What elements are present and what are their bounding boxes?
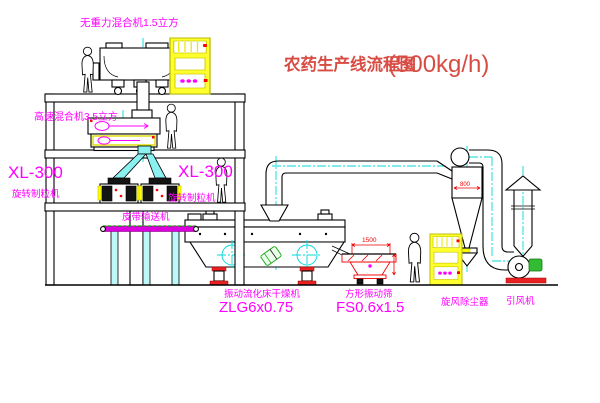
exhaust-duct — [261, 161, 452, 221]
process-flow-drawing: 无重力混合机1.5立方 农药生产线流程图 (500kg/h) 高速混合机3.5立… — [0, 0, 600, 403]
person-figure — [166, 104, 177, 148]
cyclone-label: 旋风除尘器 — [441, 296, 489, 308]
cyclone-dimension: 800 — [460, 182, 471, 188]
diagram-title-capacity: (500kg/h) — [388, 51, 489, 78]
fluid-bed-dryer — [185, 210, 345, 285]
induced-draft-fan — [506, 256, 546, 283]
granulator-left-name: 旋转制粒机 — [12, 188, 60, 200]
person-figure — [408, 233, 420, 282]
granulator-right-name: 旋转制粒机 — [168, 192, 216, 204]
belt-conveyor-label: 皮带输送机 — [122, 211, 170, 223]
discharge-pipe — [137, 82, 149, 112]
granulator-right-model: XL-300 — [178, 162, 233, 181]
granulator-left-model: XL-300 — [8, 163, 63, 182]
person-figure — [82, 47, 93, 92]
control-cabinet-bottom — [430, 234, 462, 285]
fan-motor — [529, 259, 542, 271]
dryer-model: ZLG6x0.75 — [219, 299, 293, 316]
sieve-dimension: 1500 — [362, 237, 377, 244]
vibrating-sieve — [332, 243, 396, 284]
control-cabinet-top — [170, 38, 210, 94]
gravity-mixer-label: 无重力混合机1.5立方 — [80, 16, 179, 29]
fan-label: 引风机 — [506, 295, 535, 307]
belt-conveyor — [101, 226, 199, 285]
high-speed-mixer-label: 高速混合机3.5立方 — [34, 110, 118, 123]
granulator-left — [98, 178, 140, 203]
sieve-model: FS0.6x1.5 — [336, 299, 404, 316]
flow-diagram-canvas: 无重力混合机1.5立方 农药生产线流程图 (500kg/h) 高速混合机3.5立… — [0, 0, 600, 403]
